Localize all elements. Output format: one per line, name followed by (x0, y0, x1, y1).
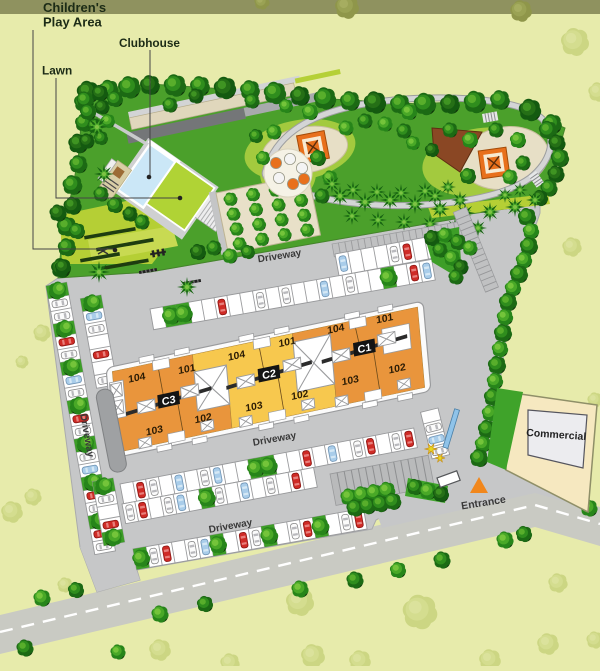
svg-text:Lawn: Lawn (42, 64, 72, 78)
svg-text:Clubhouse: Clubhouse (119, 36, 180, 50)
svg-text:Play Area: Play Area (43, 15, 103, 30)
svg-text:Children's: Children's (43, 0, 106, 15)
